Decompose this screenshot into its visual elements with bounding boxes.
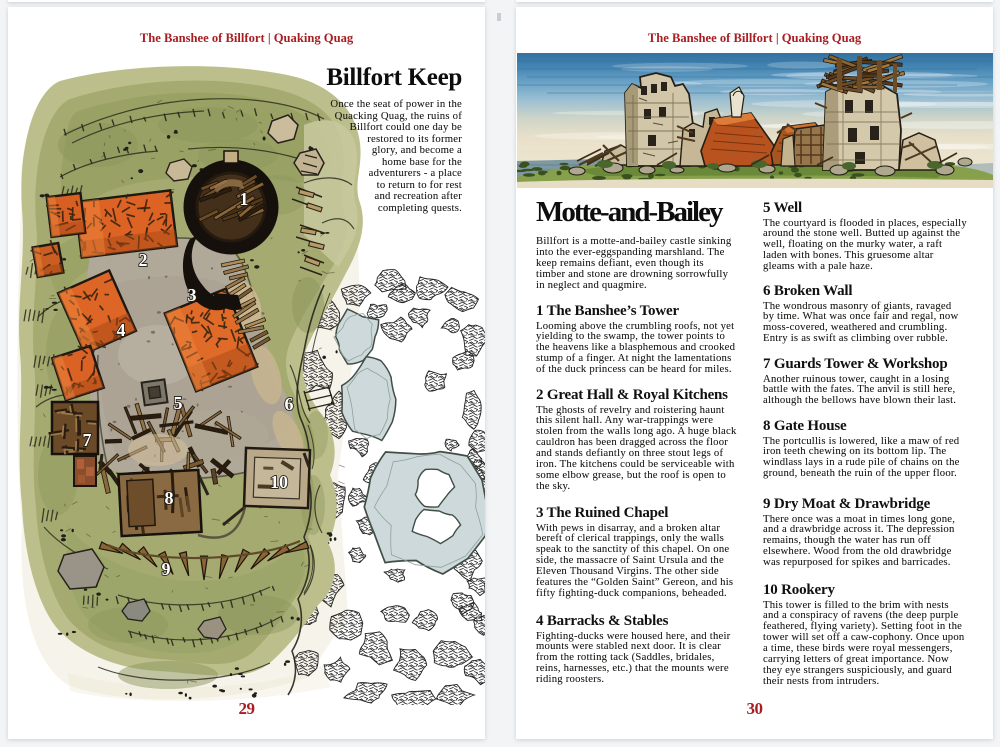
svg-text:5: 5: [174, 393, 183, 413]
svg-text:3: 3: [188, 285, 197, 305]
svg-text:1: 1: [240, 189, 249, 209]
svg-text:7: 7: [83, 430, 92, 450]
svg-text:8: 8: [165, 488, 174, 508]
svg-text:2: 2: [139, 250, 148, 270]
svg-text:9: 9: [162, 559, 171, 579]
svg-text:10: 10: [270, 472, 288, 492]
svg-text:6: 6: [285, 394, 294, 414]
svg-text:4: 4: [117, 320, 126, 340]
